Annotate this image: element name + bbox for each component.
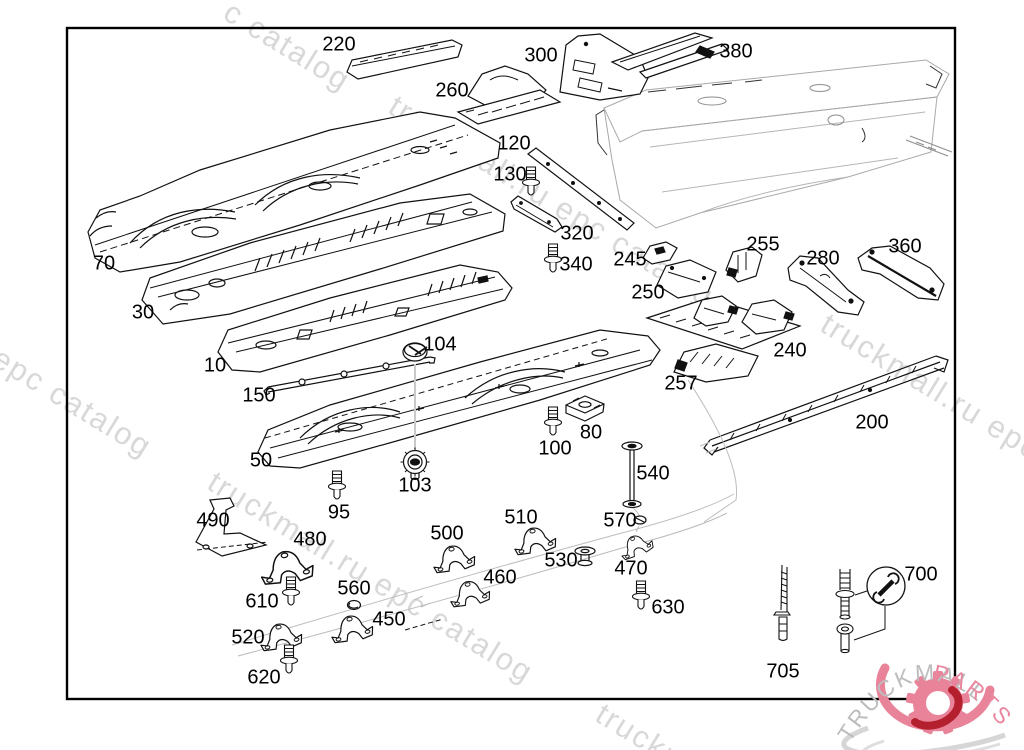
part-callout-130: 130 <box>493 164 526 187</box>
part-callout-260: 260 <box>435 80 468 103</box>
part-callout-50: 50 <box>250 450 272 473</box>
part-callout-630: 630 <box>651 597 684 620</box>
part-callout-530: 530 <box>544 550 577 573</box>
part-callout-500: 500 <box>430 523 463 546</box>
part-callout-560: 560 <box>337 578 370 601</box>
part-callout-450: 450 <box>372 609 405 632</box>
part-callout-340: 340 <box>559 254 592 277</box>
part-callout-520: 520 <box>231 627 264 650</box>
part-callout-255: 255 <box>746 234 779 257</box>
part-callout-320: 320 <box>560 223 593 246</box>
part-callout-100: 100 <box>538 438 571 461</box>
part-callout-103: 103 <box>398 475 431 498</box>
part-callout-250: 250 <box>631 282 664 305</box>
part-callout-700: 700 <box>904 564 937 587</box>
part-callout-104: 104 <box>423 334 456 357</box>
part-callout-705: 705 <box>766 661 799 684</box>
part-callout-380: 380 <box>719 41 752 64</box>
part-callout-480: 480 <box>293 529 326 552</box>
part-callout-360: 360 <box>888 236 921 259</box>
part-callout-200: 200 <box>855 412 888 435</box>
part-callout-240: 240 <box>773 340 806 363</box>
part-callout-460: 460 <box>483 567 516 590</box>
part-callout-470: 470 <box>614 558 647 581</box>
part-callout-120: 120 <box>497 133 530 156</box>
part-callout-30: 30 <box>132 302 154 325</box>
part-callout-280: 280 <box>806 248 839 271</box>
part-callout-257: 257 <box>664 373 697 396</box>
part-callout-540: 540 <box>636 463 669 486</box>
part-callout-95: 95 <box>328 502 350 525</box>
part-callout-80: 80 <box>580 422 602 445</box>
part-callout-610: 610 <box>245 591 278 614</box>
part-callout-300: 300 <box>524 45 557 68</box>
diagram-page: c catalogtruckmall.ru epc catalogl epc c… <box>0 0 1024 750</box>
callout-layer: 2203003802601201303203402452502552803602… <box>0 0 1024 750</box>
part-callout-70: 70 <box>93 253 115 276</box>
part-callout-620: 620 <box>247 667 280 690</box>
part-callout-490: 490 <box>196 510 229 533</box>
part-callout-245: 245 <box>613 249 646 272</box>
part-callout-150: 150 <box>242 385 275 408</box>
part-callout-220: 220 <box>322 34 355 57</box>
part-callout-570: 570 <box>603 510 636 533</box>
part-callout-10: 10 <box>204 355 226 378</box>
part-callout-510: 510 <box>504 507 537 530</box>
